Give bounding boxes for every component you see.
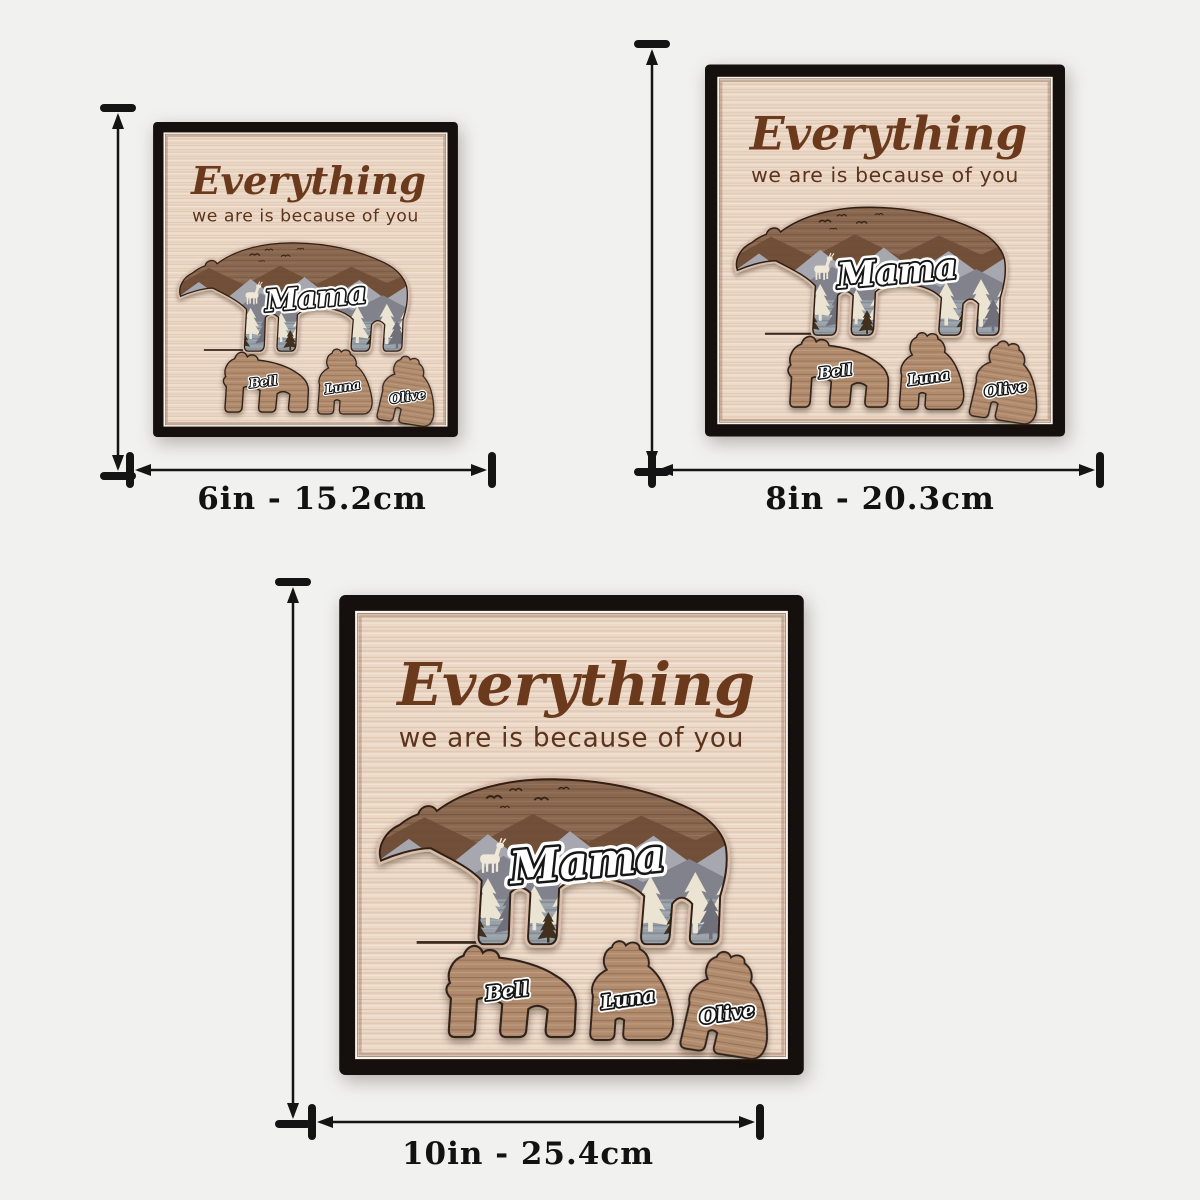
width-arrow-8in	[648, 448, 1104, 492]
height-arrow-10in	[271, 578, 315, 1128]
height-arrow-8in	[630, 40, 674, 476]
size-label-10in: 10in - 25.4cm	[368, 1136, 688, 1172]
variant-8in: 8in - 20.3cm	[0, 0, 1200, 1200]
width-arrow-6in	[126, 448, 496, 492]
product-plaque-8in	[705, 63, 1065, 438]
variant-10in: 10in - 25.4cm	[0, 0, 1200, 1200]
product-plaque-10in	[338, 595, 805, 1075]
size-chart: 6in - 15.2cm 8in - 20.3cm	[0, 0, 1200, 1200]
height-arrow-6in	[96, 104, 140, 480]
product-plaque-6in	[153, 122, 458, 437]
size-label-8in: 8in - 20.3cm	[730, 481, 1030, 517]
variant-6in: 6in - 15.2cm	[0, 0, 1200, 1200]
size-label-6in: 6in - 15.2cm	[162, 481, 462, 517]
width-arrow-10in	[308, 1100, 764, 1144]
